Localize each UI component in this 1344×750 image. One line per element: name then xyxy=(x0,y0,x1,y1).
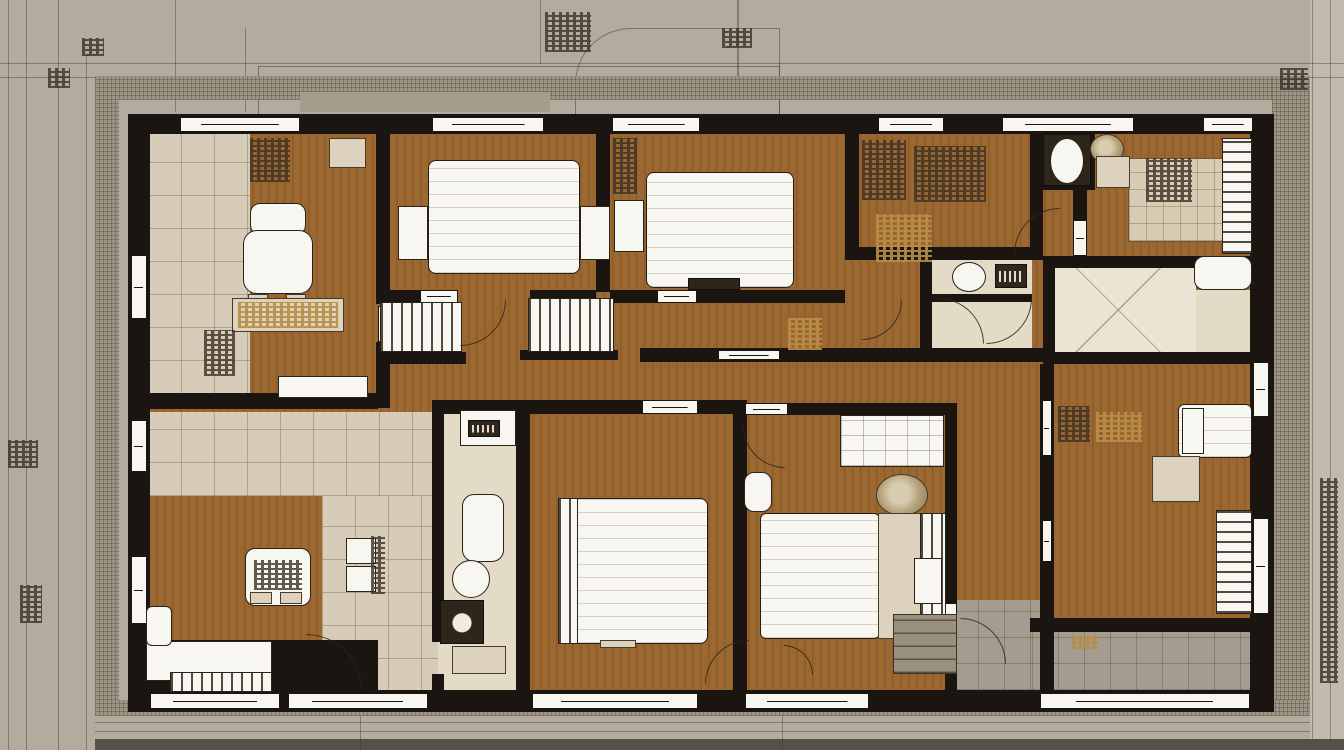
dim-stamp-left-2 xyxy=(20,585,42,623)
bottom-vline-2 xyxy=(782,712,783,750)
bottom-apron-line-2 xyxy=(95,731,1310,732)
stamp-rightroom-a xyxy=(1058,406,1090,442)
wall-h-terrace xyxy=(1030,618,1252,632)
balcony-ledge xyxy=(300,92,550,112)
dim-stamp-topleft-1 xyxy=(82,38,104,56)
bed-2 xyxy=(646,172,794,288)
door-gap-bed5 xyxy=(642,400,698,414)
entry-cabinet xyxy=(914,558,942,604)
dining-chairs-marks xyxy=(254,560,302,590)
window-left-2 xyxy=(131,420,147,472)
nightstand-bed2-left xyxy=(614,200,644,252)
stamp-kitchen-vertical xyxy=(371,536,385,594)
niche-label-box xyxy=(995,264,1027,288)
pantry-shelf-1 xyxy=(862,140,906,200)
stamp-bed2-shelf xyxy=(788,318,822,350)
nightstand-right-room xyxy=(1152,456,1200,502)
floor-terrace xyxy=(1032,632,1252,690)
sideboard-room1 xyxy=(278,376,368,398)
shower-tub-column xyxy=(462,494,504,562)
top-margin-vline-3 xyxy=(540,0,541,64)
washlet-label xyxy=(468,420,500,437)
floor-bath-mat xyxy=(1196,290,1252,356)
window-partition-1 xyxy=(1042,400,1052,456)
sofa-bed6 xyxy=(840,415,944,467)
floor-plan xyxy=(0,0,1344,750)
terrace-mark xyxy=(1072,635,1098,649)
vanity-column xyxy=(452,646,506,674)
bed5-headboard xyxy=(558,498,578,644)
wall-v-room1-upper xyxy=(376,132,390,304)
nightstand-bed1-right xyxy=(580,206,610,260)
bottom-apron-line-1 xyxy=(95,722,1310,723)
sink-column xyxy=(452,560,490,598)
wall-v-bed6-right-a xyxy=(945,403,957,603)
plant-bed6 xyxy=(876,474,928,516)
tv-board-bed2 xyxy=(688,278,740,290)
window-center-wall xyxy=(718,350,780,360)
dresser-topleft xyxy=(329,138,366,168)
window-bottom-4 xyxy=(745,693,869,709)
dim-stamp-left-1 xyxy=(8,440,38,468)
bathtub xyxy=(1194,256,1252,290)
window-top-3 xyxy=(612,117,700,132)
window-top-4 xyxy=(878,117,944,132)
daybed-right xyxy=(1216,510,1252,614)
sofa-arm xyxy=(146,606,172,646)
wall-v-bathroom-right-left xyxy=(1043,256,1055,364)
left-margin-line-1 xyxy=(8,0,9,750)
window-left-3 xyxy=(131,556,147,624)
right-margin-line-1 xyxy=(1312,0,1313,750)
table-topright xyxy=(1096,156,1130,188)
wall-closet-bottom xyxy=(378,352,466,364)
counter-sketch-items xyxy=(238,302,338,328)
wall-h-bathroom-right-bottom xyxy=(1043,352,1270,364)
massage-chair-seat xyxy=(243,230,313,294)
wall-v-bathcol-right xyxy=(516,400,530,690)
wall-h-bed6-top xyxy=(788,403,945,415)
window-partition-2 xyxy=(1042,520,1052,562)
wall-v-bed2-pantry xyxy=(845,132,859,260)
wall-v-bathcol-left-b xyxy=(432,674,444,690)
window-right-2 xyxy=(1253,518,1269,614)
door-gap-bed2 xyxy=(657,290,697,303)
window-top-1 xyxy=(180,117,300,132)
dim-stamp-top xyxy=(545,12,591,52)
sofa-seat-cushions xyxy=(170,672,272,692)
outer-hatch-right xyxy=(1272,76,1310,716)
window-top-6 xyxy=(1203,117,1253,132)
wall-h-closet-right-bottom xyxy=(845,348,1043,362)
window-right-1 xyxy=(1253,362,1269,417)
stamp-rightroom-b xyxy=(1096,412,1142,442)
pantry-shelf-3 xyxy=(876,214,932,262)
wall-h-bed2-bottom-a xyxy=(610,290,657,303)
bed-6 xyxy=(760,513,880,639)
wall-h-bed2-bottom-b xyxy=(697,290,845,303)
wall-h-corridor-b xyxy=(532,400,642,414)
window-top-5 xyxy=(1002,117,1134,132)
dim-stamp-topleft-2 xyxy=(48,68,70,88)
outer-hatch-left xyxy=(95,76,119,716)
wardrobe-topright xyxy=(1222,138,1252,254)
bottom-dark-band xyxy=(95,739,1344,750)
pantry-shelf-2 xyxy=(914,146,986,202)
window-top-2 xyxy=(432,117,544,132)
dim-stamp-top-pole xyxy=(722,28,752,48)
washing-machine xyxy=(440,600,484,644)
window-bottom-2 xyxy=(288,693,428,709)
left-margin-line-4 xyxy=(86,55,87,750)
window-bottom-3 xyxy=(532,693,698,709)
floor-bathroom-right xyxy=(1046,264,1196,356)
left-margin-line-2 xyxy=(26,0,27,750)
stamp-hall-top xyxy=(613,138,637,194)
hallway-shoe-rack xyxy=(528,298,614,352)
hallway-closet xyxy=(380,302,462,352)
dim-stamp-topright xyxy=(1280,68,1308,90)
stamp-room1-a xyxy=(250,138,290,182)
window-bottom-5 xyxy=(1040,693,1250,709)
blueprint-canvas xyxy=(0,0,1344,750)
nightstand-bed1-left xyxy=(398,206,428,260)
dining-chair-south-1 xyxy=(250,592,272,604)
entry-steps xyxy=(893,614,957,674)
door-gap-topright-bedroom xyxy=(1073,220,1087,256)
wall-v-niche-left xyxy=(920,260,932,348)
window-left-1 xyxy=(131,255,147,319)
bottom-vline-1 xyxy=(360,712,361,750)
pillow-single-bed xyxy=(1182,408,1204,454)
door-gap-bed6 xyxy=(745,403,788,415)
dining-chair-south-2 xyxy=(280,592,302,604)
bed5-foot xyxy=(600,640,636,648)
wall-h-corridor-c xyxy=(698,400,735,414)
window-bottom-1 xyxy=(150,693,280,709)
stamp-room1-b xyxy=(204,330,235,376)
outer-hatch-top xyxy=(95,76,1310,100)
niche-sink xyxy=(952,262,986,292)
stamp-topright-bedroom xyxy=(1146,158,1192,202)
toilet-bowl xyxy=(1050,138,1084,184)
dim-annotation-column-right xyxy=(1320,478,1338,683)
bed-5 xyxy=(558,498,708,644)
armchair-bed6 xyxy=(744,472,772,512)
left-margin-line-3 xyxy=(58,0,59,750)
bed-1 xyxy=(428,160,580,274)
floor-tile-dining xyxy=(148,412,444,496)
